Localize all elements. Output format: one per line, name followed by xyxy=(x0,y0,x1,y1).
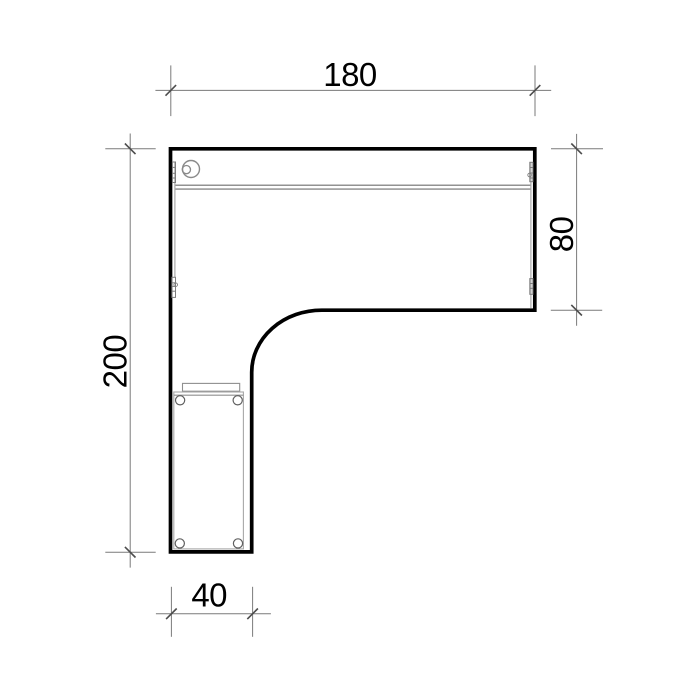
svg-text:80: 80 xyxy=(543,216,580,252)
svg-text:200: 200 xyxy=(97,335,134,389)
svg-text:40: 40 xyxy=(191,576,227,613)
svg-text:180: 180 xyxy=(323,56,377,93)
